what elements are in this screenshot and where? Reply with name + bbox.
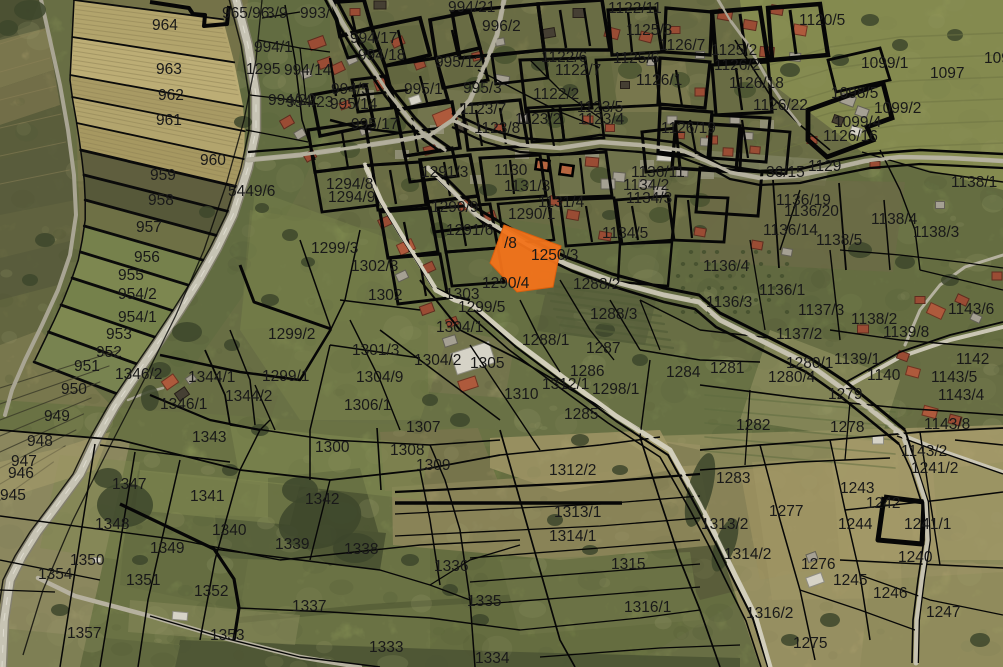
svg-text:1131/3: 1131/3 bbox=[504, 178, 550, 195]
svg-text:1302: 1302 bbox=[368, 287, 402, 304]
svg-text:1342: 1342 bbox=[305, 491, 339, 508]
svg-text:957: 957 bbox=[136, 219, 162, 236]
svg-text:949: 949 bbox=[44, 408, 70, 425]
svg-text:1123/5: 1123/5 bbox=[577, 99, 623, 116]
svg-text:1097: 1097 bbox=[930, 65, 964, 82]
svg-text:1137/2: 1137/2 bbox=[776, 326, 822, 343]
svg-text:1126/22: 1126/22 bbox=[753, 97, 808, 114]
svg-text:1123/7: 1123/7 bbox=[460, 101, 506, 118]
svg-text:948: 948 bbox=[27, 433, 53, 450]
svg-text:1350: 1350 bbox=[70, 552, 105, 569]
svg-text:994/18: 994/18 bbox=[358, 47, 405, 64]
svg-text:1301/3: 1301/3 bbox=[352, 342, 399, 359]
svg-text:945: 945 bbox=[0, 487, 26, 504]
svg-text:1312/2: 1312/2 bbox=[549, 462, 596, 479]
svg-text:1338: 1338 bbox=[344, 541, 378, 558]
svg-text:995/3: 995/3 bbox=[463, 80, 502, 97]
svg-text:1305: 1305 bbox=[470, 355, 504, 372]
svg-text:1139/8: 1139/8 bbox=[883, 324, 929, 341]
svg-text:1282: 1282 bbox=[736, 417, 770, 434]
svg-text:1142: 1142 bbox=[956, 351, 989, 368]
svg-text:1123/8: 1123/8 bbox=[474, 120, 520, 137]
svg-text:1126/19: 1126/19 bbox=[661, 120, 716, 137]
svg-text:1346/1: 1346/1 bbox=[160, 396, 207, 413]
svg-text:1313/2: 1313/2 bbox=[701, 516, 748, 533]
svg-text:1299/1: 1299/1 bbox=[262, 368, 309, 385]
svg-text:1125/6: 1125/6 bbox=[613, 50, 659, 67]
svg-text:1299/3: 1299/3 bbox=[311, 240, 358, 257]
svg-text:1246: 1246 bbox=[873, 585, 907, 602]
svg-text:1337: 1337 bbox=[292, 598, 326, 615]
svg-text:954/2: 954/2 bbox=[118, 286, 157, 303]
svg-text:1143/4: 1143/4 bbox=[938, 387, 985, 404]
svg-text:1278: 1278 bbox=[830, 419, 864, 436]
svg-text:1302/3: 1302/3 bbox=[351, 258, 398, 275]
svg-text:36/15: 36/15 bbox=[766, 164, 805, 181]
svg-text:1340: 1340 bbox=[212, 522, 247, 539]
svg-text:1120/5: 1120/5 bbox=[799, 12, 845, 29]
svg-text:1352: 1352 bbox=[194, 583, 228, 600]
svg-text:1304/2: 1304/2 bbox=[414, 352, 461, 369]
svg-text:1290/9: 1290/9 bbox=[431, 199, 478, 216]
svg-text:1240: 1240 bbox=[898, 549, 933, 566]
svg-text:1138/5: 1138/5 bbox=[816, 232, 862, 249]
svg-text:963: 963 bbox=[156, 61, 182, 78]
svg-text:1139/1: 1139/1 bbox=[834, 351, 880, 368]
svg-text:1291/6: 1291/6 bbox=[446, 222, 493, 239]
svg-text:1242: 1242 bbox=[866, 495, 900, 512]
svg-text:1288/1: 1288/1 bbox=[522, 332, 569, 349]
svg-text:1287: 1287 bbox=[586, 340, 620, 357]
svg-text:1130: 1130 bbox=[494, 162, 528, 179]
svg-text:960: 960 bbox=[200, 152, 226, 169]
svg-text:1300: 1300 bbox=[315, 439, 350, 456]
svg-text:1280/4: 1280/4 bbox=[768, 369, 816, 386]
svg-text:1136/11: 1136/11 bbox=[631, 164, 685, 181]
svg-text:1277: 1277 bbox=[769, 503, 803, 520]
svg-text:1136/20: 1136/20 bbox=[784, 203, 839, 220]
svg-text:1284: 1284 bbox=[666, 364, 701, 381]
svg-text:1136/1: 1136/1 bbox=[759, 282, 805, 299]
svg-text:1316/2: 1316/2 bbox=[746, 605, 793, 622]
svg-text:1309: 1309 bbox=[416, 457, 450, 474]
svg-text:3/9: 3/9 bbox=[266, 5, 288, 22]
svg-text:1349: 1349 bbox=[150, 540, 184, 557]
svg-text:1241/2: 1241/2 bbox=[911, 460, 958, 477]
svg-text:1143/6: 1143/6 bbox=[948, 301, 994, 318]
svg-text:962: 962 bbox=[158, 87, 184, 104]
svg-text:994/14: 994/14 bbox=[284, 62, 332, 79]
svg-text:994/1: 994/1 bbox=[254, 39, 293, 56]
svg-text:956: 956 bbox=[134, 249, 160, 266]
svg-text:1143/5: 1143/5 bbox=[931, 369, 977, 386]
svg-text:1315: 1315 bbox=[611, 556, 645, 573]
svg-text:1336: 1336 bbox=[434, 558, 468, 575]
svg-text:965/96: 965/96 bbox=[222, 5, 269, 22]
svg-text:1279: 1279 bbox=[828, 386, 862, 403]
svg-text:1346/2: 1346/2 bbox=[115, 366, 162, 383]
svg-text:1307: 1307 bbox=[406, 419, 440, 436]
svg-text:995/17: 995/17 bbox=[351, 116, 398, 133]
svg-text:1122/2: 1122/2 bbox=[533, 86, 579, 103]
svg-text:953: 953 bbox=[106, 326, 132, 343]
svg-text:1126/2: 1126/2 bbox=[714, 57, 760, 74]
svg-text:1098/5: 1098/5 bbox=[831, 85, 878, 102]
svg-text:1353: 1353 bbox=[210, 627, 244, 644]
svg-text:1138/1: 1138/1 bbox=[951, 174, 997, 191]
svg-text:995/12: 995/12 bbox=[435, 54, 482, 71]
svg-text:994/5: 994/5 bbox=[331, 81, 370, 98]
svg-text:1126/16: 1126/16 bbox=[823, 128, 878, 145]
svg-text:1250/3: 1250/3 bbox=[531, 247, 578, 264]
svg-text:1283: 1283 bbox=[716, 470, 750, 487]
svg-text:1347: 1347 bbox=[112, 476, 146, 493]
svg-text:1295: 1295 bbox=[246, 61, 280, 78]
svg-text:/8: /8 bbox=[504, 235, 517, 252]
svg-text:1129: 1129 bbox=[808, 158, 841, 175]
svg-text:1344/2: 1344/2 bbox=[225, 388, 272, 405]
svg-text:1140: 1140 bbox=[867, 367, 901, 384]
svg-text:1341: 1341 bbox=[190, 488, 224, 505]
svg-text:996/2: 996/2 bbox=[482, 18, 521, 35]
svg-text:1245: 1245 bbox=[833, 572, 867, 589]
svg-text:1288/2: 1288/2 bbox=[573, 276, 620, 293]
svg-text:994/17: 994/17 bbox=[350, 30, 397, 47]
svg-text:1126/1: 1126/1 bbox=[636, 72, 682, 89]
svg-text:1241/1: 1241/1 bbox=[904, 516, 951, 533]
svg-text:1143/8: 1143/8 bbox=[924, 416, 970, 433]
svg-text:1138/4: 1138/4 bbox=[871, 211, 918, 228]
svg-text:1126/18: 1126/18 bbox=[729, 75, 784, 92]
svg-text:993/: 993/ bbox=[300, 5, 331, 22]
svg-text:1357: 1357 bbox=[67, 625, 101, 642]
svg-text:1247: 1247 bbox=[926, 604, 960, 621]
svg-text:1314/1: 1314/1 bbox=[549, 528, 596, 545]
svg-text:109: 109 bbox=[984, 50, 1003, 67]
svg-text:1134/5: 1134/5 bbox=[602, 225, 648, 242]
svg-text:950: 950 bbox=[61, 381, 87, 398]
svg-text:1344/1: 1344/1 bbox=[188, 369, 235, 386]
svg-text:1099/1: 1099/1 bbox=[861, 55, 908, 72]
svg-text:1285: 1285 bbox=[564, 406, 598, 423]
svg-text:1122/11: 1122/11 bbox=[608, 0, 662, 17]
svg-text:1291/3: 1291/3 bbox=[421, 164, 468, 181]
svg-text:1294/9: 1294/9 bbox=[328, 189, 375, 206]
svg-text:1310: 1310 bbox=[504, 386, 539, 403]
svg-text:1290/4: 1290/4 bbox=[482, 275, 530, 292]
svg-text:995/1: 995/1 bbox=[404, 81, 443, 98]
svg-text:1136/3: 1136/3 bbox=[706, 294, 752, 311]
svg-text:1244: 1244 bbox=[838, 516, 873, 533]
svg-text:1136/14: 1136/14 bbox=[763, 222, 818, 239]
svg-text:1134/3: 1134/3 bbox=[626, 190, 672, 207]
svg-text:1137/3: 1137/3 bbox=[798, 302, 844, 319]
svg-text:1316/1: 1316/1 bbox=[624, 599, 671, 616]
svg-text:1351: 1351 bbox=[126, 572, 160, 589]
svg-text:5449/6: 5449/6 bbox=[228, 183, 275, 200]
svg-text:1343: 1343 bbox=[192, 429, 226, 446]
svg-text:1313/1: 1313/1 bbox=[554, 504, 601, 521]
svg-text:1143/2: 1143/2 bbox=[901, 443, 947, 460]
svg-text:1306/1: 1306/1 bbox=[344, 397, 391, 414]
svg-text:1276: 1276 bbox=[801, 556, 835, 573]
svg-text:1333: 1333 bbox=[369, 639, 403, 656]
svg-text:946: 946 bbox=[8, 465, 34, 482]
svg-text:964: 964 bbox=[152, 17, 178, 34]
svg-text:1275: 1275 bbox=[793, 635, 827, 652]
svg-text:1281: 1281 bbox=[710, 360, 744, 377]
svg-text:954/1: 954/1 bbox=[118, 309, 157, 326]
svg-text:1290/1: 1290/1 bbox=[508, 206, 555, 223]
svg-text:1304/1: 1304/1 bbox=[436, 319, 483, 336]
svg-text:1298/1: 1298/1 bbox=[592, 381, 639, 398]
svg-text:1126/7: 1126/7 bbox=[659, 37, 705, 54]
svg-text:1138/3: 1138/3 bbox=[913, 224, 959, 241]
svg-text:1288/3: 1288/3 bbox=[590, 306, 637, 323]
svg-text:959: 959 bbox=[150, 167, 176, 184]
svg-text:1304/9: 1304/9 bbox=[356, 369, 403, 386]
svg-text:958: 958 bbox=[148, 192, 174, 209]
svg-text:1334: 1334 bbox=[475, 650, 510, 667]
svg-text:1123/2: 1123/2 bbox=[515, 111, 561, 128]
svg-text:1299/5: 1299/5 bbox=[458, 299, 505, 316]
svg-text:994/23: 994/23 bbox=[286, 94, 333, 111]
svg-text:1299/2: 1299/2 bbox=[268, 326, 315, 343]
svg-text:952: 952 bbox=[96, 344, 122, 361]
svg-text:1354: 1354 bbox=[38, 566, 73, 583]
svg-text:994/21: 994/21 bbox=[448, 0, 495, 16]
svg-text:1335: 1335 bbox=[467, 593, 501, 610]
svg-text:1339: 1339 bbox=[275, 536, 309, 553]
svg-text:995/14: 995/14 bbox=[330, 96, 378, 113]
svg-text:951: 951 bbox=[74, 358, 100, 375]
svg-text:955: 955 bbox=[118, 267, 144, 284]
svg-text:1312/1: 1312/1 bbox=[542, 376, 589, 393]
svg-text:1136/4: 1136/4 bbox=[703, 258, 750, 275]
svg-text:1314/2: 1314/2 bbox=[724, 546, 771, 563]
svg-text:1122/7: 1122/7 bbox=[555, 62, 601, 79]
svg-text:961: 961 bbox=[156, 112, 182, 129]
svg-text:1348: 1348 bbox=[95, 516, 129, 533]
